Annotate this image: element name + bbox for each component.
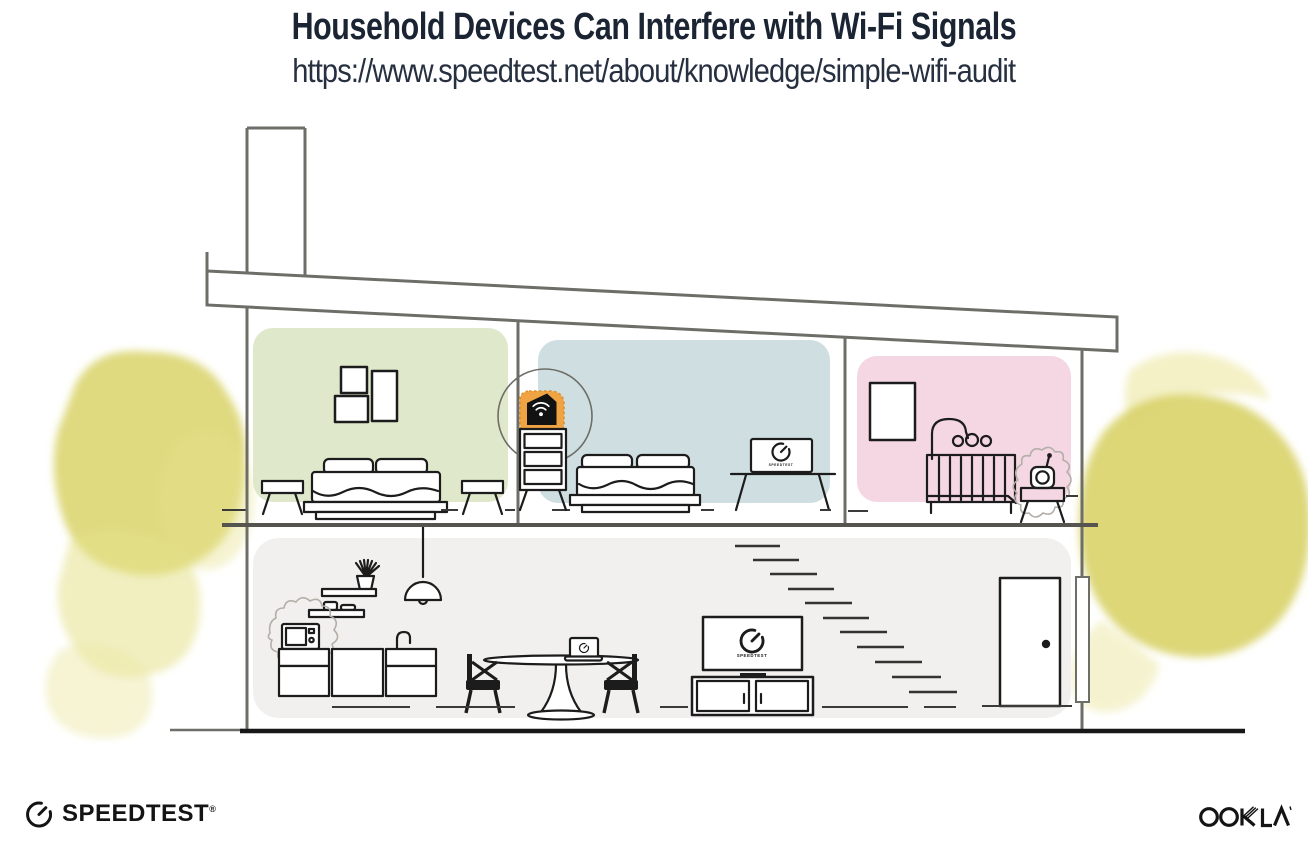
laptop	[565, 638, 602, 661]
front-door	[1000, 578, 1060, 706]
speedtest-logo: SPEEDTEST®	[24, 799, 216, 829]
downspout	[1076, 577, 1089, 702]
tv: SPEEDTEST	[703, 617, 802, 676]
door-knob	[1042, 640, 1050, 648]
ookla-wordmark	[1198, 801, 1294, 831]
microwave	[282, 624, 319, 649]
nursery-picture-frame	[870, 383, 915, 440]
registered-mark: ®	[209, 804, 216, 814]
tv-screen-label: SPEEDTEST	[737, 653, 768, 658]
foliage-right	[1071, 352, 1308, 712]
tv-console	[692, 677, 813, 715]
desktop-monitor: SPEEDTEST	[751, 439, 812, 475]
house-illustration: SPEEDTEST	[0, 0, 1308, 861]
chimney	[247, 128, 305, 277]
speedtest-wordmark: SPEEDTEST®	[62, 800, 216, 828]
ookla-logo	[1198, 801, 1294, 836]
monitor-screen-label: SPEEDTEST	[769, 463, 794, 467]
foliage-left	[46, 351, 254, 738]
bed-master	[304, 459, 447, 519]
infographic-page: Household Devices Can Interfere with Wi-…	[0, 0, 1308, 861]
speedtest-gauge-icon	[24, 799, 54, 829]
